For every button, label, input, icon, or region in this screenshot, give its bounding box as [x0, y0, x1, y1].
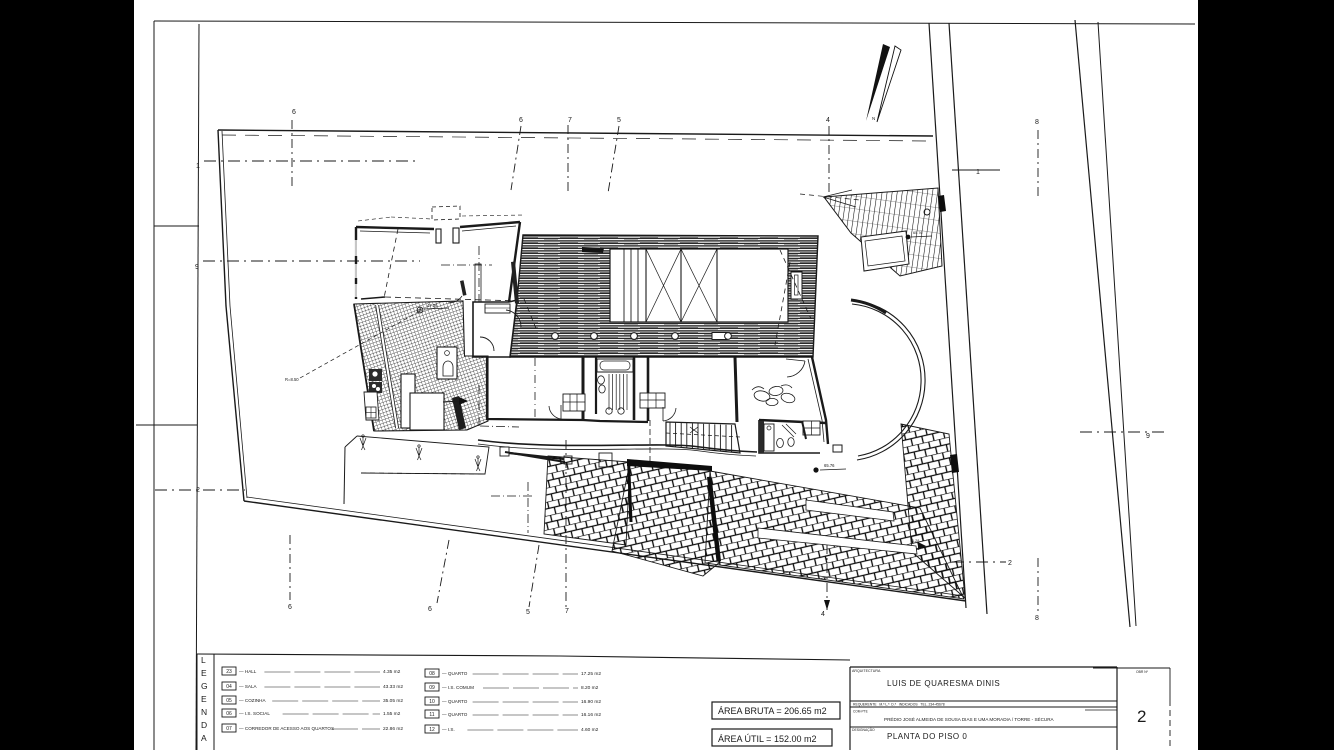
- svg-text:LUIS DE QUARESMA DINIS: LUIS DE QUARESMA DINIS: [887, 679, 1000, 688]
- svg-text:ARQUITECTURA: ARQUITECTURA: [852, 669, 881, 673]
- svg-text:E: E: [201, 668, 207, 678]
- svg-text:7: 7: [568, 117, 572, 124]
- svg-text:16.16 m2: 16.16 m2: [581, 712, 601, 718]
- svg-text:COM-PTE: COM-PTE: [853, 710, 868, 714]
- svg-text:— I.S.: — I.S.: [442, 727, 455, 732]
- svg-text:05: 05: [226, 698, 232, 704]
- svg-text:— I.S. COMUM: — I.S. COMUM: [442, 685, 474, 690]
- svg-text:65.76: 65.76: [824, 463, 835, 468]
- svg-text:6: 6: [519, 117, 523, 124]
- svg-text:04: 04: [226, 684, 232, 690]
- svg-text:5: 5: [617, 117, 621, 124]
- svg-text:4: 4: [826, 117, 830, 124]
- svg-text:7: 7: [565, 608, 569, 615]
- svg-text:REQUERENTE M.ª L.ª D.ª IN: REQUERENTE M.ª L.ª D.ª INDICADOS TEL. 23…: [853, 703, 945, 707]
- svg-text:6: 6: [428, 606, 432, 613]
- svg-text:6: 6: [288, 604, 292, 611]
- svg-text:OBR Nº: OBR Nº: [1136, 670, 1149, 674]
- svg-text:E: E: [201, 694, 207, 704]
- svg-text:9: 9: [1146, 433, 1150, 440]
- svg-text:— I.S. SOCIAL: — I.S. SOCIAL: [239, 711, 270, 716]
- svg-text:09: 09: [429, 685, 435, 691]
- svg-text:N: N: [201, 707, 207, 717]
- svg-text:R=8.50: R=8.50: [285, 377, 299, 382]
- svg-text:— COZINHA: — COZINHA: [239, 698, 266, 703]
- svg-text:17.25 m2: 17.25 m2: [581, 671, 601, 677]
- svg-text:11: 11: [429, 712, 434, 718]
- svg-text:— SALA: — SALA: [239, 684, 258, 689]
- svg-text:22.86 m2: 22.86 m2: [383, 726, 403, 732]
- svg-text:10: 10: [429, 699, 435, 705]
- svg-text:4.35 m2: 4.35 m2: [383, 669, 401, 675]
- svg-text:8.20 m2: 8.20 m2: [581, 685, 599, 691]
- svg-text:07: 07: [226, 726, 232, 732]
- svg-text:06: 06: [226, 711, 232, 717]
- svg-text:23: 23: [226, 669, 232, 675]
- svg-text:G: G: [201, 681, 208, 691]
- svg-text:— QUARTO: — QUARTO: [442, 699, 468, 704]
- svg-text:N: N: [872, 116, 875, 121]
- svg-text:2: 2: [1137, 707, 1146, 726]
- svg-text:16.90 m2: 16.90 m2: [581, 699, 601, 705]
- svg-text:08: 08: [429, 671, 435, 677]
- svg-text:— QUARTO: — QUARTO: [442, 671, 468, 676]
- svg-text:9: 9: [195, 264, 199, 271]
- svg-text:4: 4: [821, 611, 825, 618]
- svg-text:1.28: 1.28: [912, 539, 919, 543]
- svg-text:65.76: 65.76: [913, 231, 923, 235]
- svg-text:4.60 m2: 4.60 m2: [581, 727, 599, 733]
- svg-text:35.05 m2: 35.05 m2: [383, 698, 403, 704]
- svg-text:— CORREDOR DE ACESSO AOS QUART: — CORREDOR DE ACESSO AOS QUARTOS: [239, 726, 334, 731]
- svg-text:12: 12: [429, 727, 435, 733]
- svg-text:1.55 m2: 1.55 m2: [383, 711, 401, 717]
- svg-text:— HALL: — HALL: [239, 669, 257, 674]
- svg-text:6: 6: [292, 109, 296, 116]
- svg-text:ÁREA ÚTIL = 152.00 m2: ÁREA ÚTIL = 152.00 m2: [718, 734, 816, 744]
- svg-text:2: 2: [196, 487, 200, 494]
- svg-text:8: 8: [1035, 119, 1039, 126]
- svg-text:ÁREA BRUTA = 206.65 m2: ÁREA BRUTA = 206.65 m2: [718, 706, 827, 716]
- svg-text:L: L: [201, 655, 206, 665]
- svg-text:— QUARTO: — QUARTO: [442, 712, 468, 717]
- svg-text:PLANTA DO PISO 0: PLANTA DO PISO 0: [887, 732, 967, 741]
- svg-text:DESIGNAÇÃO: DESIGNAÇÃO: [852, 727, 875, 732]
- svg-text:A: A: [201, 733, 207, 743]
- svg-text:47.36: 47.36: [427, 303, 438, 308]
- svg-text:D: D: [201, 720, 207, 730]
- svg-text:1: 1: [196, 163, 200, 170]
- svg-text:5: 5: [526, 609, 530, 616]
- svg-text:43.33 m2: 43.33 m2: [383, 684, 403, 690]
- svg-text:2: 2: [1008, 560, 1012, 567]
- svg-text:PRÉDIO JOSÉ ALMEIDA DE SOUSA D: PRÉDIO JOSÉ ALMEIDA DE SOUSA DIAS E UMA …: [884, 716, 1055, 722]
- svg-text:8: 8: [1035, 615, 1039, 622]
